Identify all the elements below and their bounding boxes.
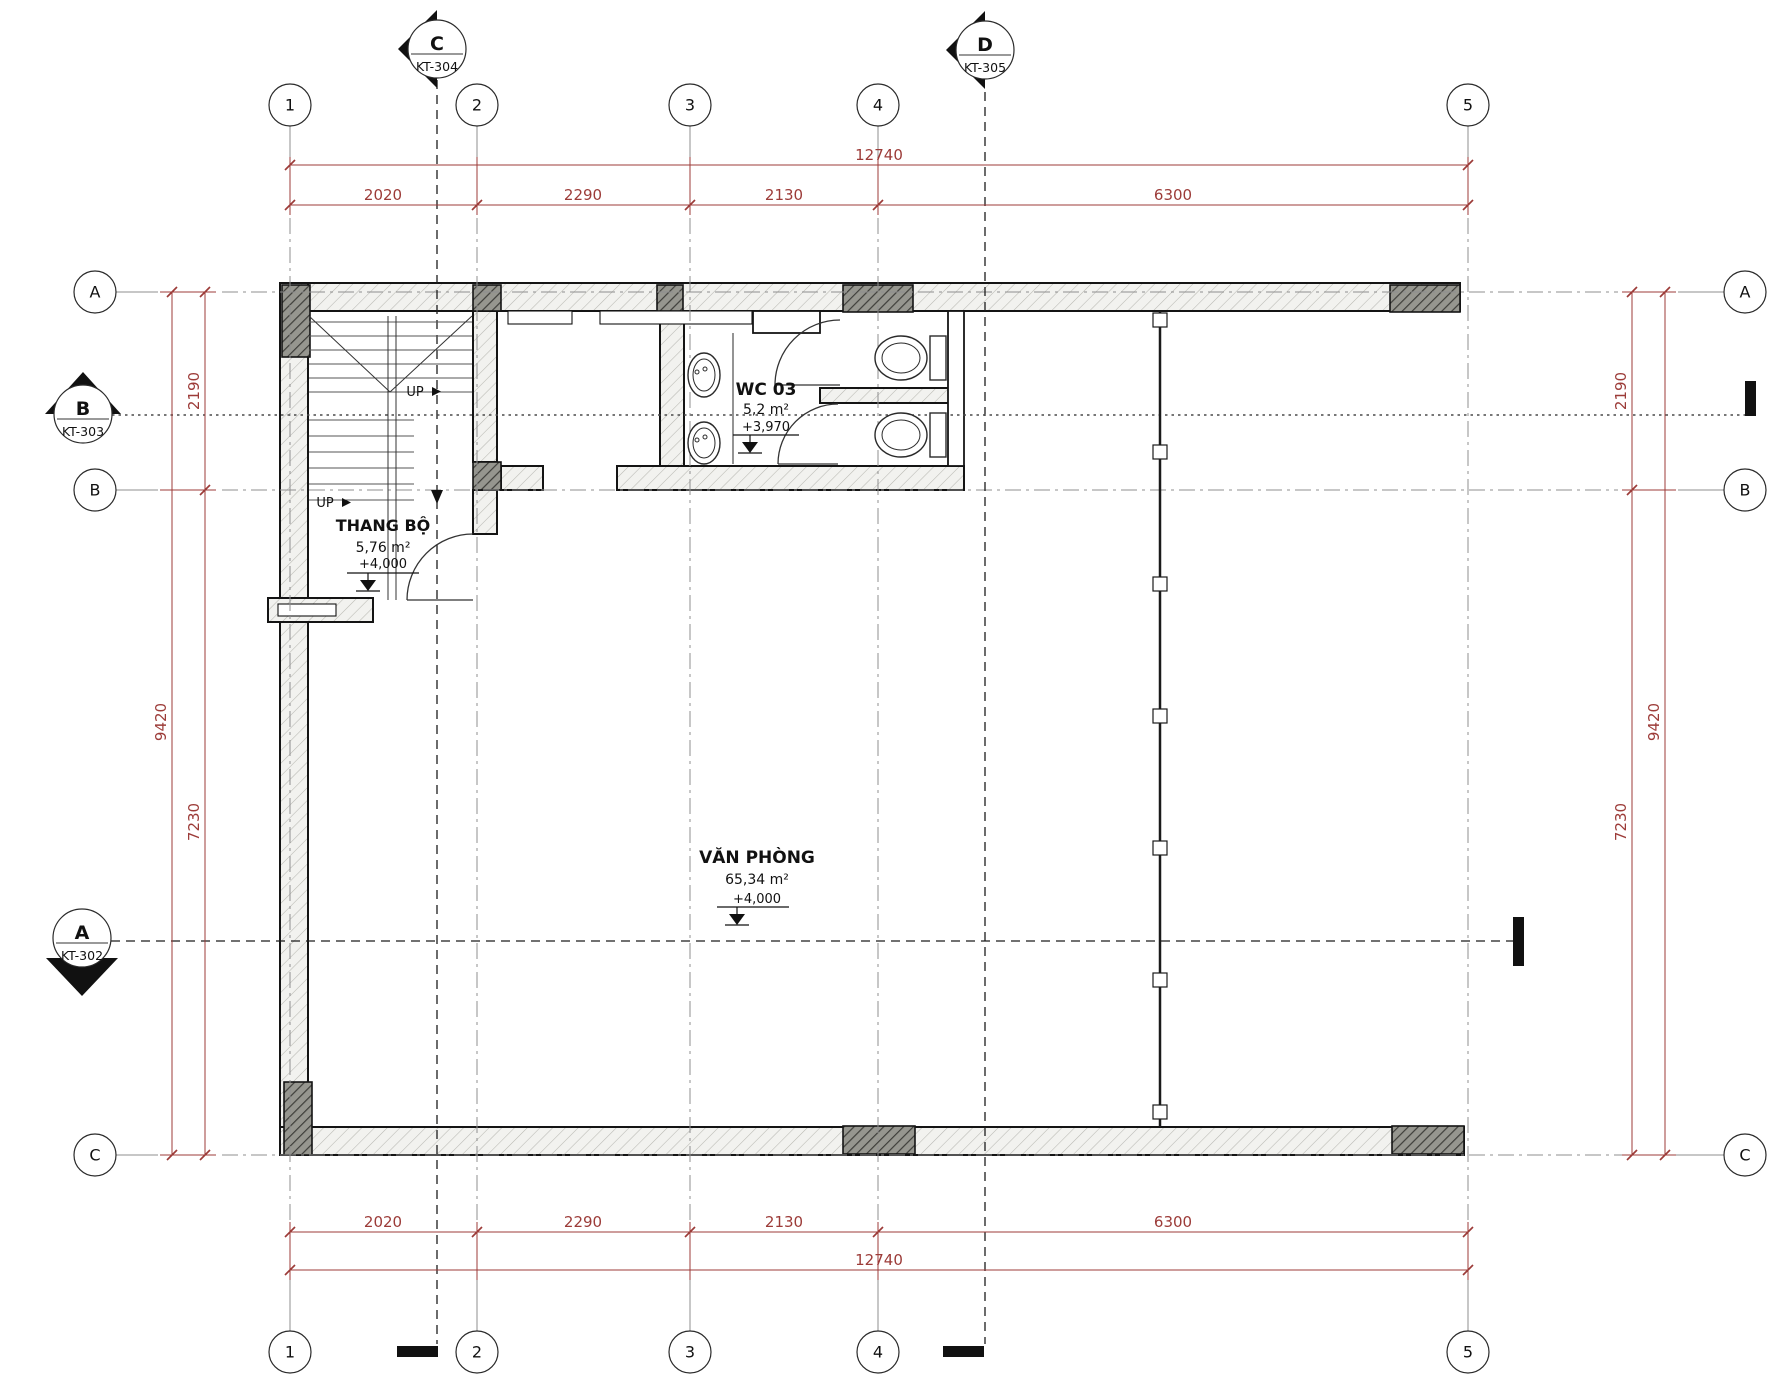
- grid-bubble-b-right-label: B: [1740, 481, 1751, 500]
- grid-bubble-a-right-label: A: [1740, 283, 1751, 302]
- section-lines: [111, 80, 1756, 1357]
- dim-right-overall: 9420: [1645, 703, 1663, 741]
- walls: [268, 283, 1464, 1155]
- column-bottom-grid4: [843, 1126, 915, 1154]
- stair-walkline-arrow-icon: [431, 490, 443, 504]
- dim-bottom-seg-2: 2290: [564, 1213, 602, 1231]
- level-marker-icon: [733, 435, 799, 453]
- column-top-left: [282, 285, 310, 357]
- dim-left-overall: 9420: [152, 703, 170, 741]
- room-stair-area: 5,76 m²: [356, 540, 411, 556]
- lobby-south-wall-stub: [501, 466, 543, 490]
- section-d-end-mark: [943, 1346, 984, 1357]
- level-marker-icon: [717, 907, 789, 925]
- stair-south-wall-niche: [278, 604, 336, 616]
- dim-bottom-seg-1: 2020: [364, 1213, 402, 1231]
- grid-bubble-2-top-label: 2: [472, 96, 482, 115]
- dim-top-seg-4: 6300: [1154, 186, 1192, 204]
- section-marker-d-label: D: [977, 34, 993, 56]
- stair-door-arc: [407, 534, 473, 600]
- room-office-level: +4,000: [733, 892, 781, 907]
- wc-west-wall: [660, 311, 684, 466]
- mullion: [1153, 313, 1167, 327]
- section-marker-d-sheet: KT-305: [964, 60, 1006, 75]
- mullion: [1153, 973, 1167, 987]
- toilet-fixture-2: [875, 413, 946, 457]
- dimensions: 12740 2020 2290 2130 6300 2020 2290 2130…: [152, 146, 1676, 1280]
- section-a-end-mark: [1513, 917, 1524, 966]
- mullion: [1153, 709, 1167, 723]
- column-bottom-left: [284, 1082, 312, 1155]
- room-stair-name: THANG BỘ: [336, 515, 431, 535]
- dim-right-lower: 7230: [1612, 803, 1630, 841]
- section-marker-b: B KT-303: [45, 372, 121, 443]
- dim-top-seg-3: 2130: [765, 186, 803, 204]
- lobby-window-band-1: [508, 311, 572, 324]
- mullion: [1153, 1105, 1167, 1119]
- up-label-2: UP: [316, 496, 334, 511]
- room-label-stair: THANG BỘ 5,76 m² +4,000: [336, 515, 431, 591]
- section-marker-c-sheet: KT-304: [416, 59, 458, 74]
- wc-north-wall: [753, 311, 820, 333]
- dim-bottom-overall: 12740: [855, 1251, 903, 1269]
- dim-top-overall: 12740: [855, 146, 903, 164]
- sink-fixture-1: [688, 353, 720, 397]
- section-c-end-mark: [397, 1346, 438, 1357]
- room-wc-area: 5,2 m²: [743, 402, 789, 418]
- curtain-wall: [1153, 311, 1167, 1127]
- wc-east-wall: [948, 311, 964, 466]
- dim-top-seg-1: 2020: [364, 186, 402, 204]
- dim-left-lower: 7230: [185, 803, 203, 841]
- grid-bubble-c-left-label: C: [89, 1146, 100, 1165]
- up-label-1: UP: [406, 385, 424, 400]
- section-marker-a: A KT-302: [46, 909, 118, 996]
- grid-bubble-5-top-label: 5: [1463, 96, 1473, 115]
- section-b-end-mark: [1745, 381, 1756, 416]
- grid-bubble-2-bottom-label: 2: [472, 1343, 482, 1362]
- wall-left: [280, 283, 308, 1155]
- section-marker-a-label: A: [75, 922, 90, 944]
- dim-right-upper: 2190: [1612, 372, 1630, 410]
- wc-south-wall: [617, 466, 964, 490]
- mullion: [1153, 445, 1167, 459]
- room-stair-level: +4,000: [359, 557, 407, 572]
- section-marker-d: D KT-305: [946, 11, 1014, 89]
- grid-bubble-c-right-label: C: [1739, 1146, 1750, 1165]
- section-marker-a-sheet: KT-302: [61, 948, 103, 963]
- stair-break-line-1: [309, 316, 390, 392]
- mullion: [1153, 841, 1167, 855]
- up-arrow-icon-2: [342, 498, 351, 507]
- stair-up-annotations: UP UP: [316, 385, 441, 511]
- room-wc-name: WC 03: [736, 380, 797, 400]
- grid-bubble-1-top-label: 1: [285, 96, 295, 115]
- toilet-fixture-1: [875, 336, 946, 380]
- section-marker-c: C KT-304: [398, 10, 466, 88]
- grid-bubbles: 1 2 3 4 5 1 2 3 4 5 A B C A B C: [74, 84, 1766, 1373]
- grid-bubble-4-top-label: 4: [873, 96, 883, 115]
- grid-bubble-3-top-label: 3: [685, 96, 695, 115]
- sink-fixture-2: [688, 422, 720, 464]
- lobby-window-band-2: [600, 311, 752, 324]
- dim-left-upper: 2190: [185, 372, 203, 410]
- column-top-right: [1390, 285, 1460, 312]
- floor-plan: 12740 2020 2290 2130 6300 2020 2290 2130…: [0, 0, 1790, 1388]
- room-office-area: 65,34 m²: [725, 872, 789, 888]
- room-label-wc: WC 03 5,2 m² +3,970: [733, 380, 799, 453]
- grid-bubble-b-left-label: B: [90, 481, 101, 500]
- section-marker-b-label: B: [76, 398, 90, 420]
- room-wc-level: +3,970: [742, 420, 790, 435]
- grid-bubble-4-bottom-label: 4: [873, 1343, 883, 1362]
- grid-bubble-1-bottom-label: 1: [285, 1343, 295, 1362]
- section-marker-c-label: C: [430, 33, 444, 55]
- dim-top-seg-2: 2290: [564, 186, 602, 204]
- grid-bubble-5-bottom-label: 5: [1463, 1343, 1473, 1362]
- stair-break-line-2: [390, 316, 472, 392]
- room-office-name: VĂN PHÒNG: [699, 846, 815, 868]
- wc-stall-partition: [820, 388, 953, 403]
- column-top-grid3: [657, 285, 683, 311]
- grid-bubble-a-left-label: A: [90, 283, 101, 302]
- mullion: [1153, 577, 1167, 591]
- dim-bottom-seg-3: 2130: [765, 1213, 803, 1231]
- dim-bottom-seg-4: 6300: [1154, 1213, 1192, 1231]
- column-bottom-right: [1392, 1126, 1464, 1154]
- section-marker-b-sheet: KT-303: [62, 424, 104, 439]
- grid-bubble-3-bottom-label: 3: [685, 1343, 695, 1362]
- room-label-office: VĂN PHÒNG 65,34 m² +4,000: [699, 846, 815, 925]
- floor-plan-svg: 12740 2020 2290 2130 6300 2020 2290 2130…: [0, 0, 1790, 1388]
